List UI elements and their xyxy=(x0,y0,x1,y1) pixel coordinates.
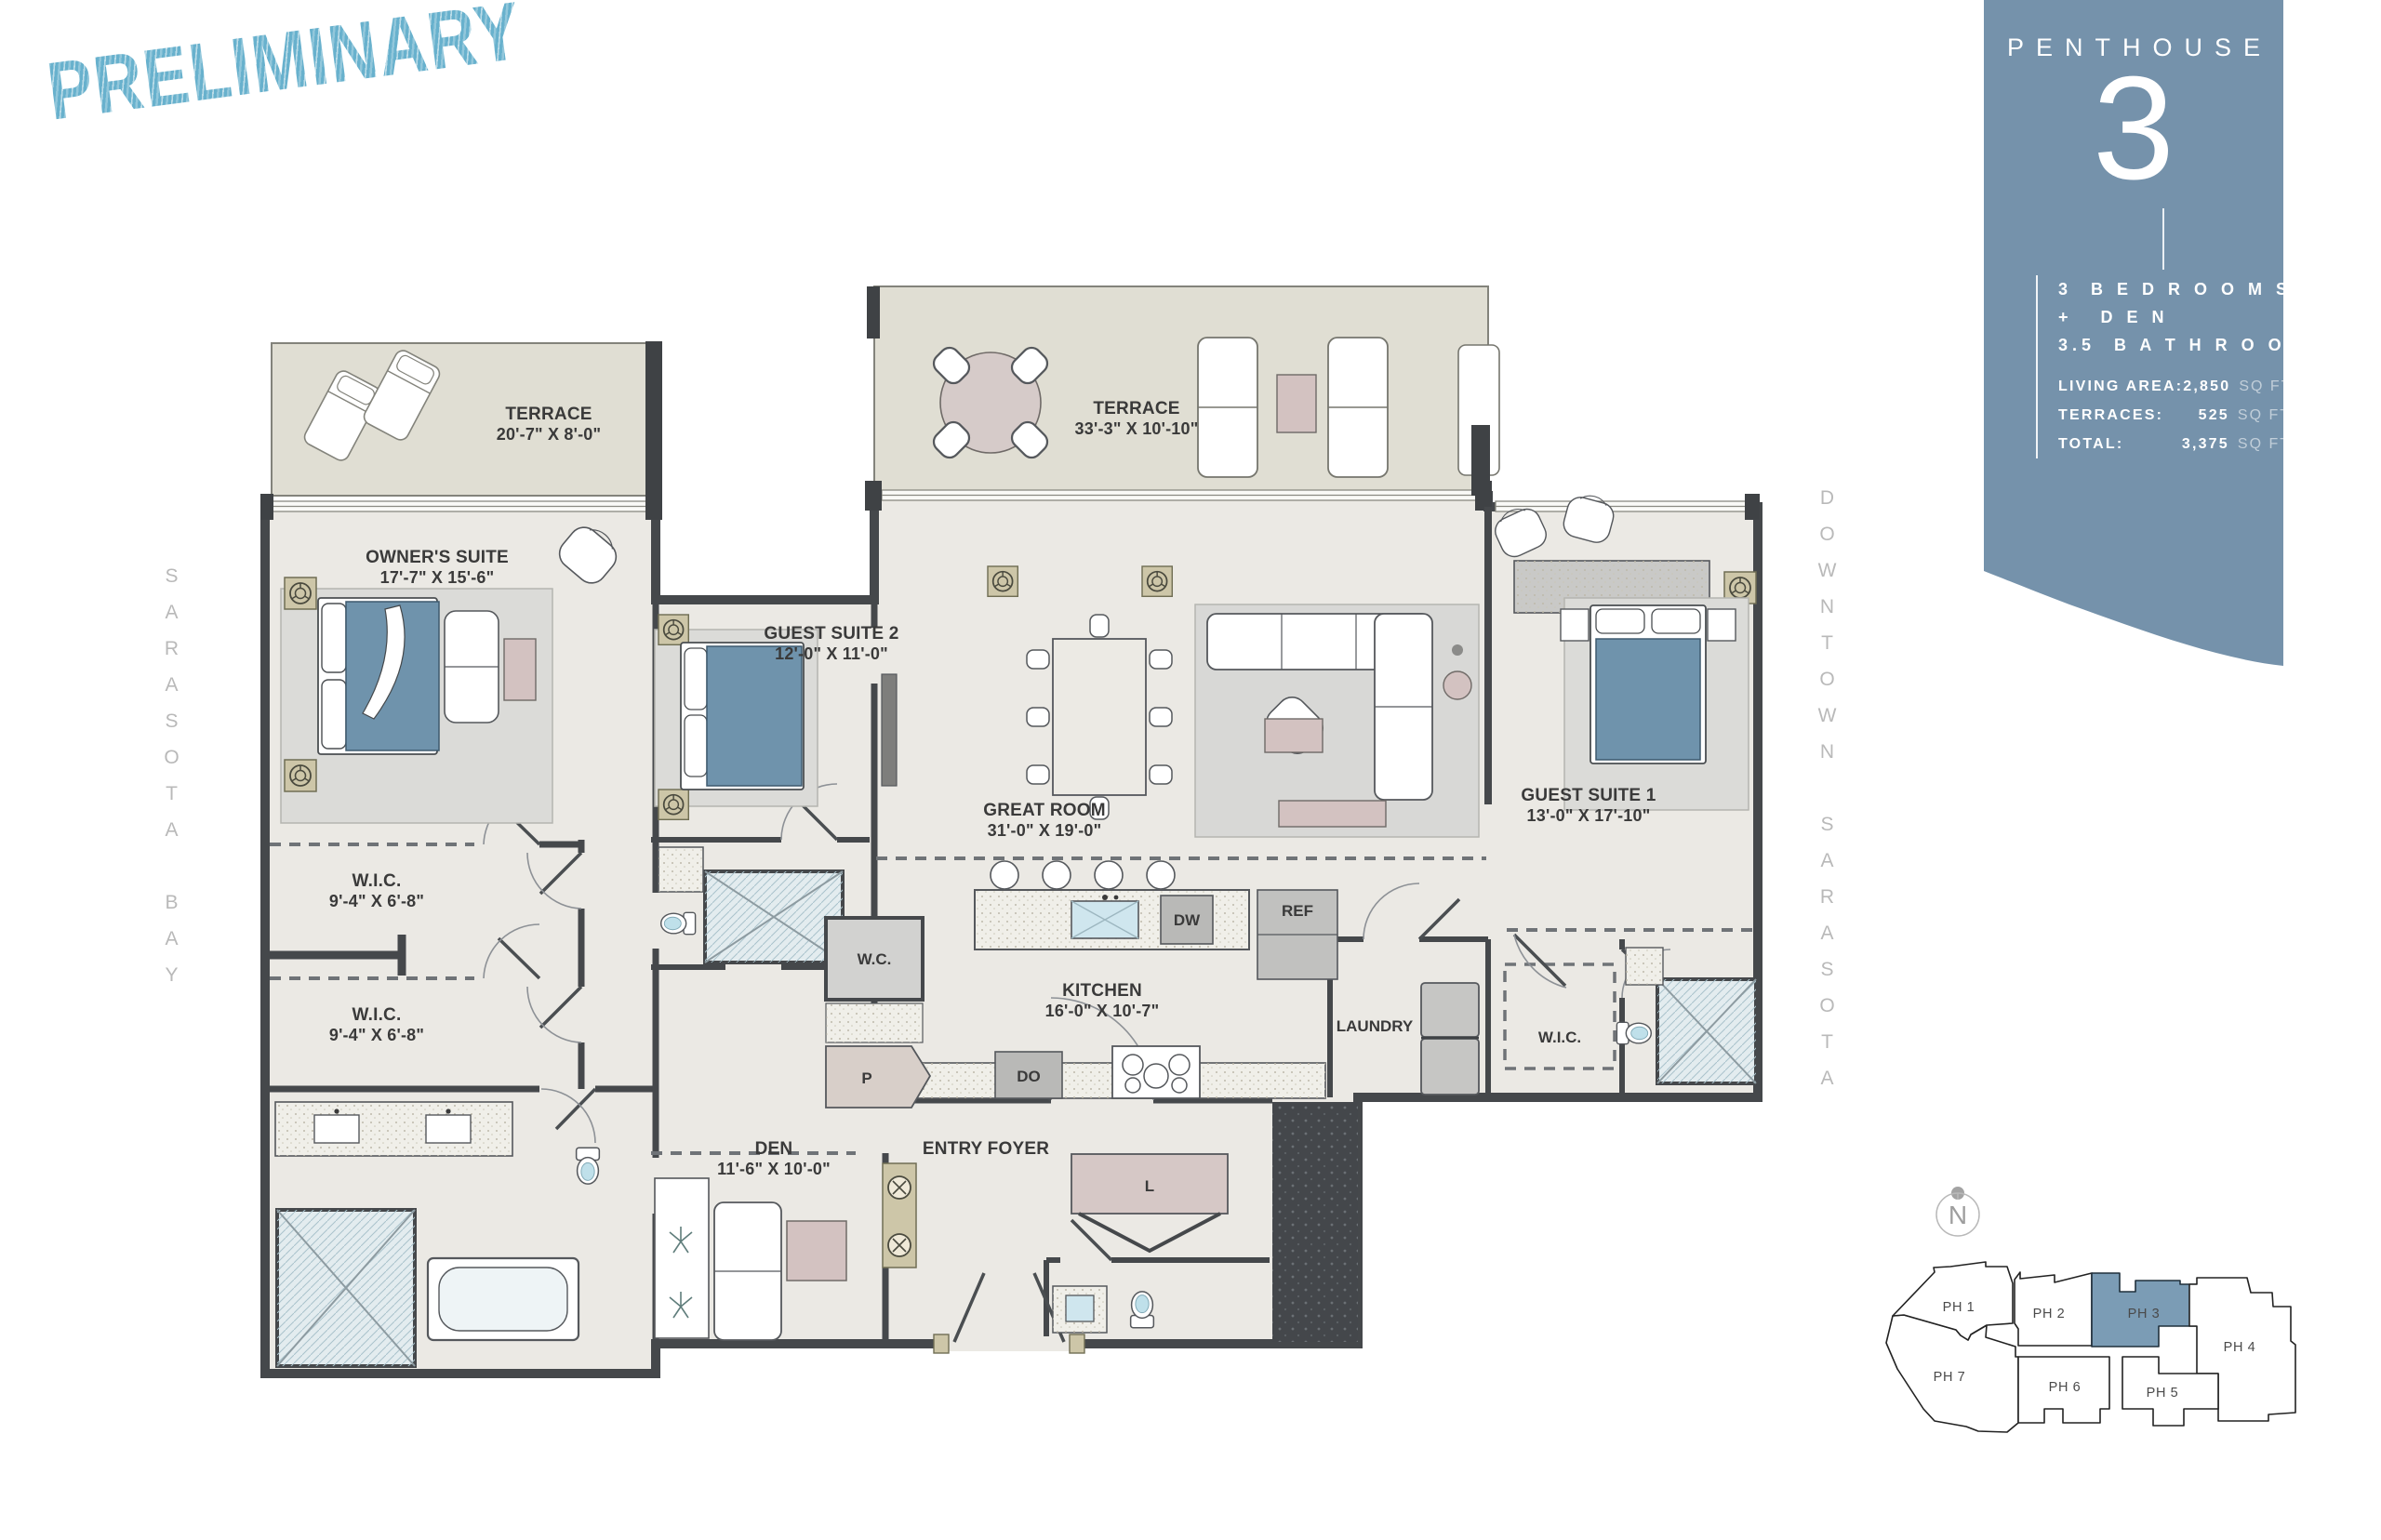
laundry-label: LAUNDRY xyxy=(1337,1017,1414,1035)
ph2-label: PH 2 xyxy=(2033,1307,2066,1321)
stat-living-value: 2,850 xyxy=(2183,372,2230,401)
context-label-downtown-sarasota: DOWNTOWN SARASOTA xyxy=(1816,487,1838,1104)
kitchen-label: KITCHEN xyxy=(1062,981,1142,1001)
wic-lower-dims: 9'-4" X 6'-8" xyxy=(329,1026,424,1044)
unit-info-panel: PENTHOUSE 3 3 B E D R O O M S + D E N 3.… xyxy=(1984,0,2283,716)
stat-terraces-label: TERRACES: xyxy=(2058,401,2163,430)
den-dims: 11'-6" X 10'-0" xyxy=(717,1160,831,1178)
laundry xyxy=(1421,983,1479,1095)
page: PRELIMINARY SARASOTA BAY DOWNTOWN SARASO… xyxy=(0,0,2381,1540)
ph5-label: PH 5 xyxy=(2147,1386,2179,1401)
guest-suite-2-label: GUEST SUITE 2 xyxy=(764,624,898,644)
penthouse-number: 3 xyxy=(1984,45,2283,213)
ref-label: REF xyxy=(1282,902,1313,920)
stat-total: TOTAL: 3,375 SQ FT xyxy=(2058,430,2291,458)
great-room-dims: 31'-0" X 19'-0" xyxy=(988,821,1102,840)
stat-terraces-unit: SQ FT xyxy=(2238,401,2291,430)
ph3-label: PH 3 xyxy=(2128,1307,2161,1321)
do-label: DO xyxy=(1017,1068,1041,1085)
feature-bedrooms: 3 B E D R O O M S xyxy=(2058,275,2291,303)
compass: N xyxy=(1936,1187,1979,1236)
wic-right-label: W.I.C. xyxy=(1538,1029,1581,1046)
stat-living-area: LIVING AREA: 2,850 SQ FT xyxy=(2058,372,2291,401)
powder-room xyxy=(1053,1286,1153,1333)
stat-terraces-value: 525 xyxy=(2199,401,2229,430)
wic-upper-dims: 9'-4" X 6'-8" xyxy=(329,892,424,910)
entry-foyer-label: ENTRY FOYER xyxy=(923,1139,1049,1159)
owners-suite-label: OWNER'S SUITE xyxy=(366,548,509,567)
pantry: P xyxy=(826,1046,930,1108)
dishwasher: DW xyxy=(1161,896,1213,944)
kitchen-dims: 16'-0" X 10'-7" xyxy=(1045,1002,1160,1020)
dw-label: DW xyxy=(1174,911,1201,929)
guest-suite-2-dims: 12'-0" X 11'-0" xyxy=(775,644,888,663)
ph4-label: PH 4 xyxy=(2224,1340,2256,1355)
stat-total-label: TOTAL: xyxy=(2058,430,2123,458)
refrigerator: REF xyxy=(1257,890,1337,979)
key-plan: N PH 1 PH 2 PH 3 PH 4 PH 5 PH 6 PH 7 xyxy=(1879,1183,2381,1536)
ph1-label: PH 1 xyxy=(1943,1300,1975,1315)
double-oven: DO xyxy=(995,1052,1062,1098)
water-closet: W.C. xyxy=(826,918,923,1000)
kitchen-island: DW xyxy=(975,890,1249,949)
floor-plan: DW REF DO xyxy=(260,284,1762,1381)
terrace-main xyxy=(874,286,1499,496)
terrace-left xyxy=(272,343,653,496)
stat-living-label: LIVING AREA: xyxy=(2058,372,2183,401)
cooktop xyxy=(1112,1046,1200,1098)
great-room-label: GREAT ROOM xyxy=(983,801,1105,820)
compass-n-label: N xyxy=(1949,1201,1967,1229)
stat-terraces: TERRACES: 525 SQ FT xyxy=(2058,401,2291,430)
wic-lower-label: W.I.C. xyxy=(352,1005,402,1025)
ph6-label: PH 6 xyxy=(2049,1380,2082,1395)
area-stats: LIVING AREA: 2,850 SQ FT TERRACES: 525 S… xyxy=(2058,372,2291,458)
wc-label: W.C. xyxy=(858,950,892,968)
pantry-label: P xyxy=(861,1069,871,1087)
stat-total-unit: SQ FT xyxy=(2238,430,2291,458)
context-label-sarasota-bay: SARASOTA BAY xyxy=(160,565,182,1001)
linen-label: L xyxy=(1145,1177,1154,1195)
guest-suite-1-label: GUEST SUITE 1 xyxy=(1521,786,1656,805)
feature-bathrooms: 3.5 B A T H R O O M S xyxy=(2058,331,2291,359)
terrace-main-dims: 33'-3" X 10'-10" xyxy=(1075,419,1199,438)
stat-living-unit: SQ FT xyxy=(2239,372,2292,401)
terrace-left-dims: 20'-7" X 8'-0" xyxy=(497,425,601,444)
service-shaft xyxy=(1272,1102,1358,1342)
den-label: DEN xyxy=(755,1139,793,1159)
panel-details-block: 3 B E D R O O M S + D E N 3.5 B A T H R … xyxy=(2036,275,2291,458)
ph7-label: PH 7 xyxy=(1934,1370,1966,1385)
bathtub xyxy=(428,1258,579,1340)
guest-suite-1-dims: 13'-0" X 17'-10" xyxy=(1527,806,1651,825)
stat-total-value: 3,375 xyxy=(2182,430,2229,458)
feature-den: + D E N xyxy=(2058,303,2291,331)
preliminary-stamp: PRELIMINARY xyxy=(42,0,526,139)
owners-suite-dims: 17'-7" X 15'-6" xyxy=(380,568,495,587)
wic-upper-label: W.I.C. xyxy=(352,871,402,891)
panel-divider-line xyxy=(2162,208,2164,270)
terrace-left-label: TERRACE xyxy=(505,405,592,424)
terrace-main-label: TERRACE xyxy=(1093,399,1179,418)
